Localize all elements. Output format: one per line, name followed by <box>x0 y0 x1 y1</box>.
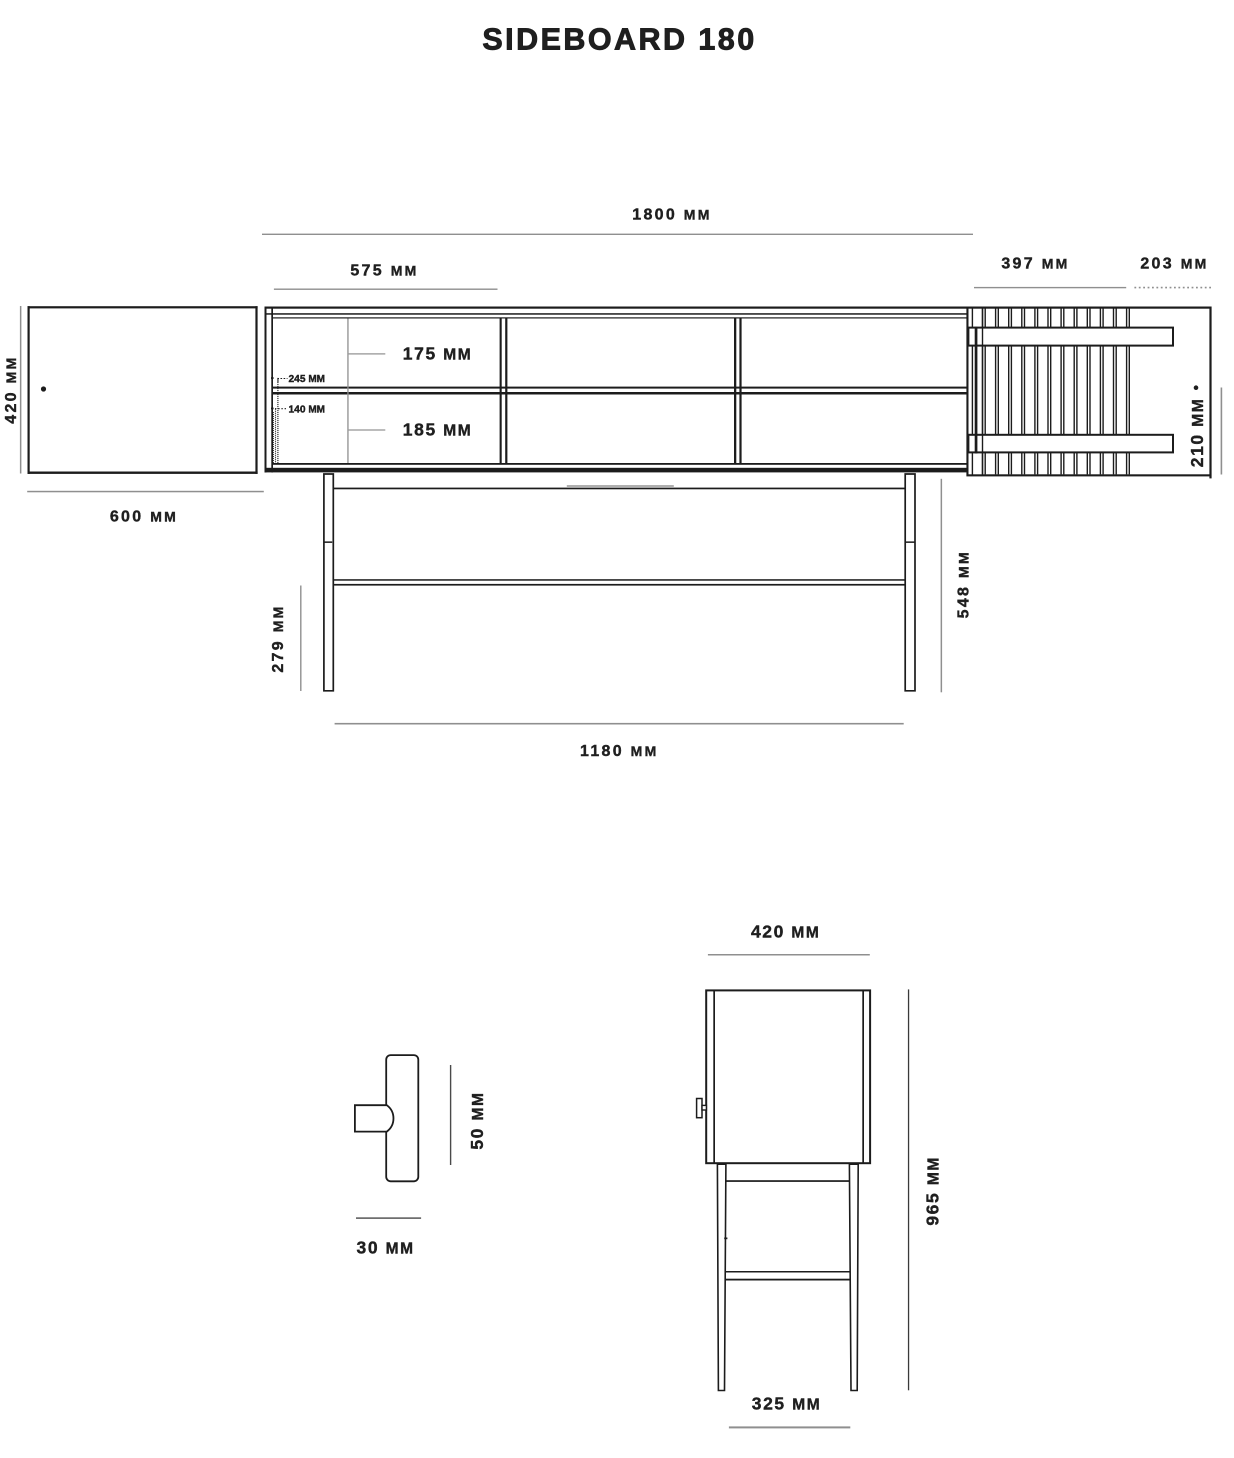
svg-text:965 MM: 965 MM <box>923 1156 943 1226</box>
svg-text:140 MM: 140 MM <box>289 405 326 416</box>
svg-text:575 MM: 575 MM <box>350 263 418 280</box>
svg-text:30 MM: 30 MM <box>357 1238 415 1258</box>
svg-text:420 MM: 420 MM <box>751 922 821 942</box>
svg-text:185 MM: 185 MM <box>403 420 473 440</box>
svg-text:548 MM: 548 MM <box>956 550 973 618</box>
svg-text:420 MM: 420 MM <box>3 355 20 423</box>
svg-text:175 MM: 175 MM <box>403 344 473 364</box>
svg-text:397 MM: 397 MM <box>1001 255 1069 272</box>
svg-text:245 MM: 245 MM <box>289 374 326 385</box>
svg-text:203 MM: 203 MM <box>1140 255 1208 272</box>
svg-text:279 MM: 279 MM <box>270 604 287 672</box>
svg-text:50 MM: 50 MM <box>467 1092 487 1150</box>
svg-text:SIDEBOARD 180: SIDEBOARD 180 <box>482 23 756 57</box>
svg-text:325 MM: 325 MM <box>752 1394 822 1414</box>
svg-text:210 MM: 210 MM <box>1187 398 1207 468</box>
svg-text:1800 MM: 1800 MM <box>632 207 711 224</box>
svg-text:1180 MM: 1180 MM <box>580 743 659 760</box>
svg-text:600 MM: 600 MM <box>110 509 178 526</box>
